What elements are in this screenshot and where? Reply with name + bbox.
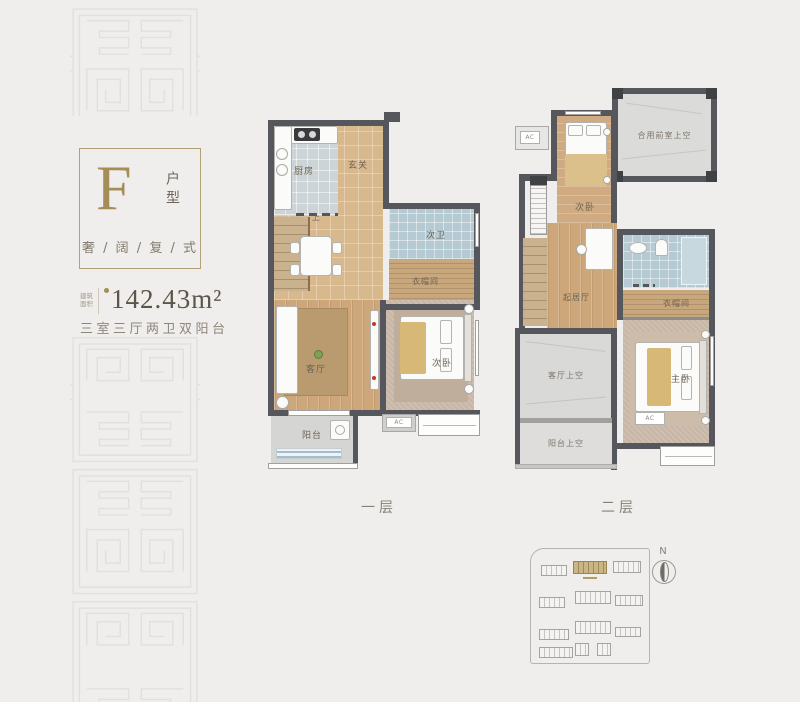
building-footprint — [575, 621, 611, 634]
unit-tagline: 奢 / 阔 / 复 / 式 — [80, 237, 200, 256]
burner-icon — [309, 131, 316, 138]
unit-type-letter: F — [96, 151, 132, 225]
shaft — [530, 176, 547, 185]
headboard — [699, 340, 707, 414]
unit-type-label: 户型 — [162, 171, 182, 209]
room-label-balcony-void: 阳台上空 — [520, 438, 612, 449]
north-label: N — [648, 546, 678, 557]
bay-window — [660, 446, 715, 466]
chair — [332, 264, 342, 276]
balcony-rug — [276, 448, 342, 459]
room-label-second-bedroom: 次卧 — [432, 356, 452, 369]
building-footprint — [615, 627, 641, 637]
wall — [515, 328, 617, 334]
fret-pattern-left-column — [70, 334, 200, 702]
compass-needle — [660, 562, 669, 582]
wall — [612, 88, 717, 94]
wall — [617, 229, 715, 235]
room-label-living-void: 客厅上空 — [520, 370, 612, 381]
wall — [551, 110, 557, 180]
window-line — [423, 425, 476, 426]
window — [565, 111, 601, 115]
desk-chair — [576, 244, 587, 255]
nightstand — [701, 416, 710, 425]
headboard — [464, 314, 472, 382]
railing — [520, 418, 612, 423]
floorplan-brochure: F 户型 奢 / 阔 / 复 / 式 建筑 面积 142.43m² 三室三厅两卫… — [0, 0, 800, 702]
railing — [515, 464, 617, 469]
nightstand — [603, 176, 611, 184]
void-marking — [526, 341, 606, 352]
dining-table — [300, 236, 332, 276]
bathroom-door — [633, 284, 655, 287]
pillow — [568, 125, 583, 136]
floor1-caption: 一层 — [344, 497, 414, 517]
building-footprint — [575, 643, 589, 656]
room-label-front-void: 合用前室上空 — [618, 130, 711, 141]
sliding-door — [288, 410, 350, 416]
corner-column — [612, 88, 623, 99]
gold-bullet-icon — [104, 288, 109, 293]
void-marking — [626, 103, 701, 115]
building-footprint — [539, 597, 565, 608]
room-label-living: 客厅 — [306, 362, 326, 375]
chair — [332, 242, 342, 254]
wall — [383, 203, 480, 209]
nightstand — [464, 384, 474, 394]
sink-icon — [276, 148, 288, 160]
window-line — [665, 456, 712, 457]
wall — [611, 110, 617, 235]
room-label-cloakroom: 衣帽间 — [663, 298, 690, 309]
stairs-up-label: 上 — [312, 212, 321, 223]
highlighted-building — [573, 561, 607, 574]
window — [475, 213, 479, 247]
pillow — [440, 320, 452, 344]
window — [710, 336, 714, 386]
wall — [353, 416, 358, 469]
chair — [290, 242, 300, 254]
floorplan-level2: 合用前室上空 AC 次卧 起居厅 — [515, 88, 722, 470]
floor2-caption: 二层 — [584, 497, 654, 517]
room-label-master-bedroom: 主卧 — [671, 372, 691, 385]
wall — [711, 88, 717, 182]
ac-tag: AC — [635, 412, 665, 425]
building-footprint — [597, 643, 611, 656]
window — [475, 320, 479, 376]
bay-window — [418, 414, 480, 436]
corner-column — [706, 171, 717, 182]
room-label-cloakroom: 衣帽间 — [412, 276, 439, 287]
floor-lamp-icon — [276, 396, 289, 409]
area-caption: 建筑 面积 — [80, 292, 93, 308]
pillow — [586, 125, 601, 136]
building-footprint — [539, 629, 569, 640]
room-label-second-bath: 次卫 — [426, 228, 446, 241]
balcony-railing-window — [268, 463, 358, 469]
wall — [612, 176, 717, 182]
void-marking — [622, 150, 706, 160]
building-footprint — [539, 647, 573, 658]
area-value: 142.43m² — [111, 284, 222, 315]
nightstand — [464, 304, 474, 314]
nightstand — [701, 330, 710, 339]
pillow — [681, 346, 692, 370]
burner-icon — [298, 131, 305, 138]
area-row: 建筑 面积 142.43m² — [80, 284, 222, 315]
building-footprint — [541, 565, 567, 576]
bed-blanket — [400, 322, 426, 374]
corner-column — [706, 88, 717, 99]
room-label-balcony: 阳台 — [268, 428, 356, 441]
room-label-kitchen: 厨房 — [294, 164, 314, 177]
building-footprint — [615, 595, 643, 606]
layout-summary: 三室三厅两卫双阳台 — [80, 318, 229, 337]
divider — [98, 288, 99, 314]
sink-icon — [629, 242, 647, 254]
unit-type-box: F 户型 奢 / 阔 / 复 / 式 — [79, 148, 201, 269]
site-plan — [530, 548, 650, 664]
wardrobe — [530, 185, 547, 235]
bed-blanket — [647, 348, 671, 406]
stove-icon — [294, 128, 320, 141]
shower — [681, 237, 707, 285]
plant-icon — [314, 350, 323, 359]
room-label-second-bedroom: 次卧 — [575, 200, 595, 213]
building-footprint — [613, 561, 641, 573]
sofa — [276, 306, 298, 394]
wall — [380, 300, 386, 416]
compass-icon — [652, 560, 676, 584]
building-footprint — [575, 591, 611, 604]
nightstand — [603, 128, 611, 136]
sink-icon — [276, 164, 288, 176]
ac-tag: AC — [520, 131, 540, 144]
desk — [585, 228, 613, 270]
room-label-sitting: 起居厅 — [563, 292, 590, 303]
wall — [383, 120, 389, 209]
room-label-entry: 玄关 — [348, 158, 368, 171]
decor-dot — [372, 322, 376, 326]
chair — [290, 264, 300, 276]
ac-tag: AC — [386, 417, 412, 428]
decor-dot — [372, 376, 376, 380]
fret-pattern-top — [70, 6, 200, 116]
void-marking — [526, 397, 606, 405]
highlighted-building-caption — [583, 577, 597, 579]
bed-blanket — [565, 154, 607, 186]
floorplan-level1: AC — [268, 118, 480, 470]
toilet-icon — [655, 239, 668, 256]
